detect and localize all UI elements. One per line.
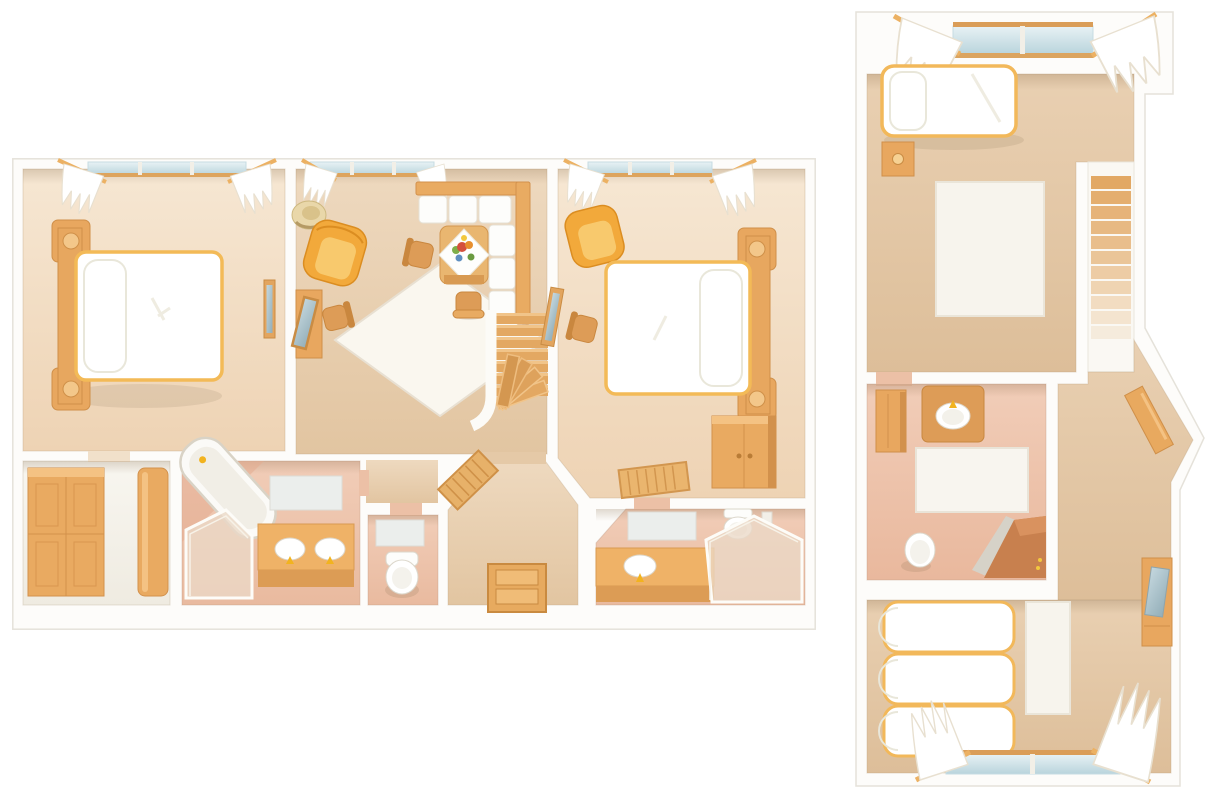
vanity-front (258, 570, 354, 587)
shower-control (1036, 566, 1040, 570)
window-mullion (1020, 26, 1025, 54)
corridor-bathroom-opening (359, 470, 369, 496)
sofa-cushion (479, 196, 511, 223)
bath-mat (916, 448, 1028, 512)
door-panel (496, 589, 538, 604)
stair-tread (1091, 296, 1131, 309)
shadow (596, 509, 805, 521)
stair-tread (1091, 191, 1131, 204)
wardrobe-knob (748, 454, 753, 459)
pillow (700, 270, 742, 386)
front-door (488, 564, 546, 612)
chair-seat (407, 240, 435, 269)
toilet (385, 552, 419, 598)
wardrobe-edge (142, 472, 148, 592)
window-mullion (392, 162, 396, 175)
double-sink-vanity (258, 524, 354, 587)
wardrobe-top (712, 416, 776, 424)
sink-vanity (922, 386, 984, 442)
flower (465, 241, 473, 249)
sofa-cushion (449, 196, 477, 223)
bench (444, 275, 484, 284)
chair-back (453, 310, 484, 318)
sofa-cushion (489, 225, 515, 256)
window-sill (588, 173, 712, 177)
nightstand (882, 142, 914, 176)
sofa-back-right (516, 182, 530, 324)
stair-tread (1091, 236, 1131, 249)
main-floor-plan (12, 158, 816, 630)
wall-mirror (628, 512, 696, 540)
living-hall-opening (482, 452, 546, 464)
wardrobe-right (138, 468, 168, 596)
bed-knob (63, 233, 79, 249)
wardrobe-knob (737, 454, 742, 459)
flower (461, 235, 467, 241)
single-bed-1 (879, 602, 1014, 652)
bed-knob (749, 391, 765, 407)
window-mullion (190, 162, 194, 175)
desk-chair (453, 292, 485, 320)
storage-cabinet (876, 390, 906, 452)
bedroom-ensuite-opening (634, 498, 670, 510)
stair-tread (1091, 266, 1131, 279)
stair-tread (1091, 311, 1131, 324)
desk-with-mirror (1142, 558, 1172, 646)
corridor-toilet-opening (390, 503, 422, 516)
bed-knob (749, 241, 765, 257)
window-mullion (628, 162, 632, 175)
wardrobe-side (768, 416, 776, 488)
dressing-table-with-mirror (292, 290, 322, 358)
sink-vanity (596, 548, 714, 602)
sofa-back-top (416, 182, 530, 195)
sofa-cushion (489, 258, 515, 289)
shower-control (1038, 558, 1042, 562)
window-sill (88, 173, 246, 177)
mattress (884, 602, 1014, 652)
staircase (1091, 176, 1131, 339)
door-panel (496, 570, 538, 585)
single-bed-2 (879, 654, 1014, 704)
mattress (884, 654, 1014, 704)
wardrobe (712, 416, 776, 488)
stair-edge (496, 325, 548, 328)
hat-crown (302, 206, 320, 220)
window-mullion (670, 162, 674, 175)
stair-tread (1091, 176, 1131, 189)
coffee-table-with-flowers (439, 226, 489, 284)
bedroom-bathroom-opening (876, 372, 912, 386)
window-mullion (1030, 754, 1035, 774)
upper-floor-plan (854, 10, 1216, 790)
window-mullion (138, 162, 142, 175)
flower (456, 255, 463, 262)
stair-tread (1091, 206, 1131, 219)
toilet-seat (910, 540, 930, 564)
nightstand-knob (893, 154, 904, 165)
corridor-floor (366, 460, 438, 503)
sofa-cushion (419, 196, 447, 223)
stair-tread (1091, 326, 1131, 339)
wardrobe-left (28, 468, 104, 596)
runner-rug (1026, 602, 1070, 714)
wall-mirror (264, 280, 275, 338)
bedroom-closet-opening (88, 451, 130, 462)
stair-edge (496, 337, 548, 340)
floor-plan-illustration (0, 0, 1220, 800)
single-bed (882, 66, 1016, 136)
cabinet-side (900, 392, 906, 452)
stair-tread (1091, 221, 1131, 234)
vanity-front (596, 586, 714, 602)
sink-basin (942, 409, 964, 425)
window-mullion (350, 162, 354, 175)
flower (468, 254, 475, 261)
stair-edge (496, 349, 548, 352)
stair-tread (1091, 251, 1131, 264)
area-rug (936, 182, 1044, 316)
stair-tread (1091, 281, 1131, 294)
bed-knob (63, 381, 79, 397)
stair-edge (496, 313, 548, 316)
pillow (890, 72, 926, 130)
wall-mirror (270, 476, 342, 510)
mirror-glass (267, 285, 273, 333)
room-closet (28, 468, 168, 596)
wardrobe-top (28, 468, 104, 477)
wall-mirror (376, 520, 424, 546)
pillow (84, 260, 126, 372)
toilet-seat (392, 567, 412, 589)
